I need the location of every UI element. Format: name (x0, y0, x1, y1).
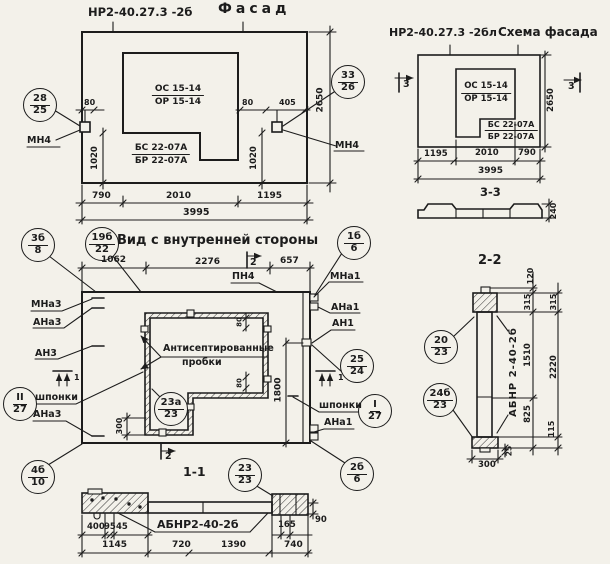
inner-callout-1b-6: 1б 6 (337, 226, 371, 260)
scheme-title: Схема фасада (498, 26, 598, 38)
scheme-section-marker-right: 3 (568, 82, 575, 92)
inner-callout-II-27: II 27 (3, 387, 37, 421)
section-1-1-dim-740: 740 (284, 541, 303, 550)
section-2-2-callout-bottom-den: 23 (433, 401, 447, 412)
section-1-1-callout-num: 23 (235, 464, 255, 476)
inner-dim-1800: 1800 (275, 377, 284, 402)
inner-callout-I-27-num: I (370, 400, 380, 412)
inner-callout-II-27-num: II (13, 393, 26, 405)
facade-panel-mark-num: БС 22-07А (132, 143, 190, 155)
scheme-dim-3995: 3995 (478, 167, 503, 176)
inner-note-line1: Антисептированные (163, 344, 274, 354)
inner-callout-25-24-den: 24 (350, 367, 364, 378)
facade-dim-80-left: 80 (84, 99, 95, 107)
facade-dim-80-right: 80 (242, 99, 253, 107)
inner-callout-23a-23-num: 23а (158, 398, 185, 410)
inner-label-ana1: АНа1 (331, 303, 359, 313)
scheme-dim-2650: 2650 (547, 88, 556, 112)
section-1-1-dim-90: 90 (315, 516, 327, 525)
section-1-1-callout-den: 23 (238, 476, 252, 487)
section-2-2-dim-315-outer: 315 (550, 294, 558, 311)
inner-callout-2b-6-den: 6 (354, 475, 361, 486)
inner-callout-3b-8: 3б 8 (21, 228, 55, 262)
scheme-dim-1195: 1195 (424, 150, 448, 159)
facade-callout-right-num: 33 (338, 71, 358, 83)
inner-callout-23a-23: 23а 23 (154, 392, 188, 426)
inner-section-marker-1-left: 1 (74, 374, 80, 382)
drawing-sheet: НР2-40.27.3 -2б Фасад ОС 15-14 ОР 15-14 … (0, 0, 610, 564)
section-2-2-callout-bottom-num: 24б (427, 389, 454, 401)
scheme-panel-mark-den: БР 22-07А (488, 131, 535, 141)
section-2-2-dim-25: 25 (505, 446, 513, 456)
section-1-1-dim-95: 95 (104, 523, 116, 532)
inner-label-shponki-left: шпонки (35, 393, 78, 403)
inner-callout-4b-10-num: 4б (28, 466, 48, 478)
inner-dim-300: 300 (116, 418, 124, 435)
inner-callout-1b-6-den: 6 (351, 244, 358, 255)
inner-dim-80-top: 80 (237, 317, 244, 327)
profile-3-3-dim: 240 (550, 203, 558, 220)
section-2-2-dim-315-inner: 315 (524, 294, 532, 311)
inner-label-an3: АН3 (35, 349, 57, 359)
inner-label-ana3: АНа3 (33, 318, 61, 328)
inner-callout-I-27-den: 27 (368, 412, 382, 423)
scheme-panel-mark: БС 22-07А БР 22-07А (485, 120, 538, 141)
section-1-1-dim-45: 45 (116, 523, 128, 532)
facade-callout-left-num: 28 (30, 94, 50, 106)
inner-callout-4b-10: 4б 10 (21, 460, 55, 494)
facade-dim-1195: 1195 (257, 192, 282, 201)
facade-window-mark-den: ОР 15-14 (155, 96, 201, 107)
inner-label-shponki-right: шпонки (319, 401, 362, 411)
scheme-dim-2010: 2010 (475, 149, 499, 158)
section-2-2-dim-120: 120 (527, 268, 535, 285)
inner-section-marker-2-bottom: 2 (165, 452, 172, 462)
inner-label-mna3: МНа3 (31, 300, 61, 310)
facade-panel-mark-den: БР 22-07А (135, 155, 187, 166)
inner-callout-25-24: 25 24 (340, 349, 374, 383)
section-1-1-callout: 23 23 (228, 458, 262, 492)
inner-dim-2276: 2276 (195, 258, 220, 267)
facade-callout-right: 33 26 (331, 65, 365, 99)
scheme-code: НР2-40.27.3 -2бл (389, 27, 497, 38)
inner-view-title: Вид с внутренней стороны (117, 234, 318, 247)
section-1-1-dim-1390: 1390 (221, 541, 246, 550)
inner-label-mna1: МНа1 (330, 272, 360, 282)
facade-window-mark-num: ОС 15-14 (152, 84, 204, 96)
section-2-2-dim-300: 300 (478, 461, 496, 470)
scheme-dim-790: 790 (518, 149, 536, 158)
section-2-2-label: 2-2 (478, 254, 502, 267)
section-1-1-dim-165: 165 (278, 521, 296, 530)
scheme-panel-mark-num: БС 22-07А (485, 120, 538, 131)
scheme-section-marker-left: 3 (403, 80, 410, 90)
inner-callout-1b-6-num: 1б (344, 232, 364, 244)
facade-callout-right-den: 26 (341, 83, 355, 94)
section-2-2-callout-bottom: 24б 23 (423, 383, 457, 417)
inner-label-an1: АН1 (332, 319, 354, 329)
section-1-1-dim-400: 400 (87, 523, 105, 532)
inner-callout-2b-6: 2б 6 (340, 457, 374, 491)
facade-dim-405: 405 (279, 99, 296, 107)
section-2-2-dim-825: 825 (524, 405, 533, 423)
section-1-1-panel-code: АБНР2-40-2б (157, 519, 239, 530)
facade-dim-2650: 2650 (317, 87, 326, 112)
section-1-1-dim-1145: 1145 (102, 541, 127, 550)
section-2-2-dim-2220: 2220 (550, 355, 559, 379)
facade-callout-left: 28 25 (23, 88, 57, 122)
section-1-1-label: 1-1 (183, 466, 206, 479)
section-2-2-callout-top: 20 23 (424, 330, 458, 364)
scheme-window-mark-den: ОР 15-14 (464, 94, 508, 105)
scheme-window-mark-num: ОС 15-14 (461, 82, 511, 94)
inner-callout-23a-23-den: 23 (164, 410, 178, 421)
inner-dim-80-bottom: 80 (237, 378, 244, 388)
facade-title: Фасад (218, 2, 290, 16)
inner-callout-II-27-den: 27 (13, 405, 27, 416)
inner-label-ana1-low: АНа1 (324, 418, 352, 428)
facade-code: НР2-40.27.3 -2б (88, 7, 192, 19)
section-2-2-dim-1510: 1510 (524, 343, 533, 367)
drawing-linework (0, 0, 610, 564)
inner-callout-19b-22-num: 19б (89, 233, 116, 245)
facade-anchor-label-left: МН4 (27, 136, 51, 146)
scheme-linework (395, 45, 581, 183)
inner-callout-I-27: I 27 (358, 394, 392, 428)
inner-callout-19b-22-den: 22 (95, 245, 109, 256)
section-1-1-dim-720: 720 (172, 541, 191, 550)
profile-3-3-linework (418, 199, 554, 222)
facade-callout-left-den: 25 (33, 106, 47, 117)
inner-callout-4b-10-den: 10 (31, 478, 45, 489)
inner-label-pn4: ПН4 (232, 272, 255, 282)
section-2-2-callout-top-den: 23 (434, 348, 448, 359)
facade-anchor-label-right: МН4 (335, 141, 359, 151)
inner-section-marker-2-top: 2 (250, 258, 257, 268)
inner-label-ana3-low: АНа3 (33, 410, 61, 420)
inner-note-line2: пробки (182, 358, 222, 368)
facade-dim-1020-left: 1020 (91, 146, 100, 170)
facade-dim-790: 790 (92, 192, 111, 201)
facade-linework (27, 22, 364, 224)
inner-callout-2b-6-num: 2б (347, 463, 367, 475)
inner-section-marker-1-right: 1 (338, 374, 344, 382)
profile-3-3-label: 3-3 (480, 187, 501, 199)
section-2-2-dim-115: 115 (548, 421, 556, 438)
inner-callout-25-24-num: 25 (347, 355, 367, 367)
inner-callout-3b-8-num: 3б (28, 234, 48, 246)
scheme-window-mark: ОС 15-14 ОР 15-14 (461, 82, 511, 105)
facade-window-mark: ОС 15-14 ОР 15-14 (152, 84, 204, 108)
facade-dim-1020-right: 1020 (250, 146, 259, 170)
facade-dim-3995: 3995 (183, 208, 209, 218)
inner-callout-3b-8-den: 8 (35, 246, 42, 257)
section-2-2-callout-top-num: 20 (431, 336, 451, 348)
inner-dim-1062: 1062 (101, 256, 126, 265)
section-2-2-panel-code: АБНР 2-40-2б (509, 327, 519, 417)
facade-panel-mark: БС 22-07А БР 22-07А (132, 143, 190, 167)
facade-dim-2010: 2010 (166, 192, 191, 201)
inner-dim-657: 657 (280, 257, 299, 266)
